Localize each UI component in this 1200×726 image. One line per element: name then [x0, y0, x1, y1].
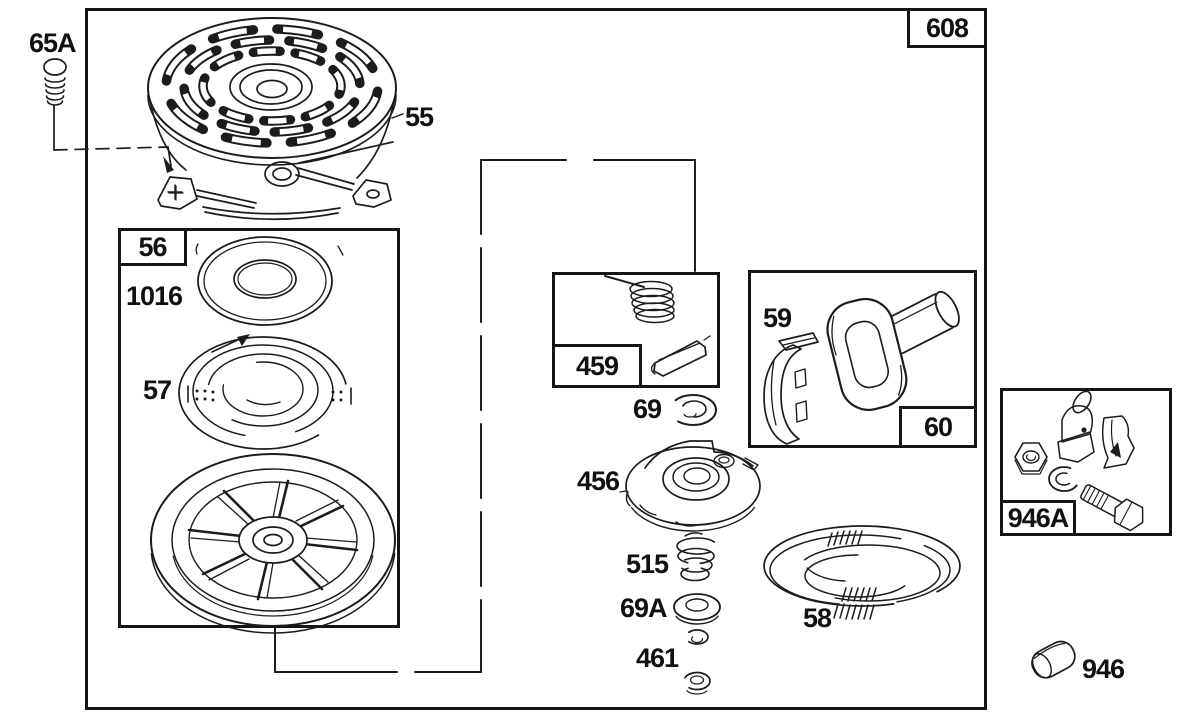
subassembly-946a-tag: 946A — [1000, 500, 1076, 536]
part-label-515: 515 — [626, 551, 668, 578]
subassembly-60-tag: 60 — [899, 406, 977, 448]
part-label-1016: 1016 — [126, 283, 182, 310]
subassembly-459-tag: 459 — [552, 344, 642, 388]
screw-65a-drawing — [44, 59, 66, 105]
parts-diagram-page: 608 56 459 60 946A 65A 55 1016 57 69 456… — [0, 0, 1200, 726]
part-label-456: 456 — [577, 468, 619, 495]
part-label-58: 58 — [803, 605, 831, 632]
assembly-608-tag: 608 — [907, 8, 987, 48]
part-label-65a: 65A — [29, 30, 76, 57]
subassembly-56-tag: 56 — [118, 228, 187, 266]
part-label-59: 59 — [763, 305, 791, 332]
subassembly-459-box: 459 — [552, 272, 720, 388]
part-label-69: 69 — [633, 396, 661, 423]
subassembly-60-box: 60 — [748, 270, 977, 448]
spacer-946-drawing — [1027, 637, 1079, 682]
part-label-461: 461 — [636, 645, 678, 672]
part-label-57: 57 — [143, 377, 171, 404]
subassembly-946a-box: 946A — [1000, 388, 1172, 536]
part-label-55: 55 — [405, 104, 433, 131]
part-label-69a: 69A — [620, 595, 667, 622]
part-label-946: 946 — [1082, 656, 1124, 683]
